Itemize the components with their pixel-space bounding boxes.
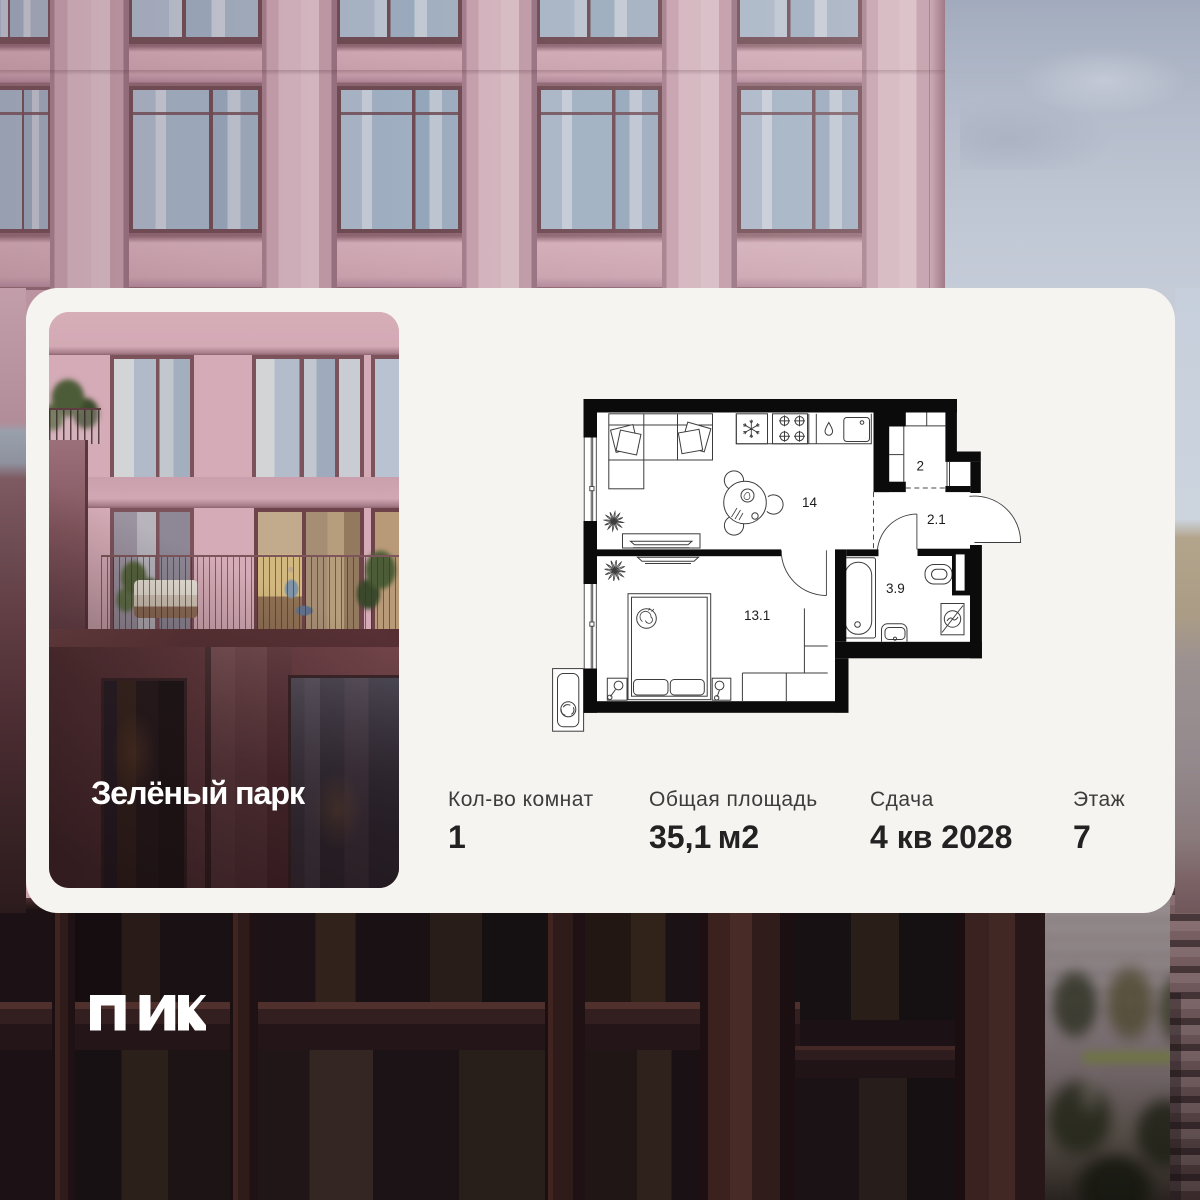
svg-text:2.1: 2.1 xyxy=(927,512,946,527)
svg-text:13.1: 13.1 xyxy=(744,608,770,623)
svg-text:2: 2 xyxy=(917,459,925,474)
svg-text:14: 14 xyxy=(802,495,818,510)
svg-text:3.9: 3.9 xyxy=(886,581,905,596)
